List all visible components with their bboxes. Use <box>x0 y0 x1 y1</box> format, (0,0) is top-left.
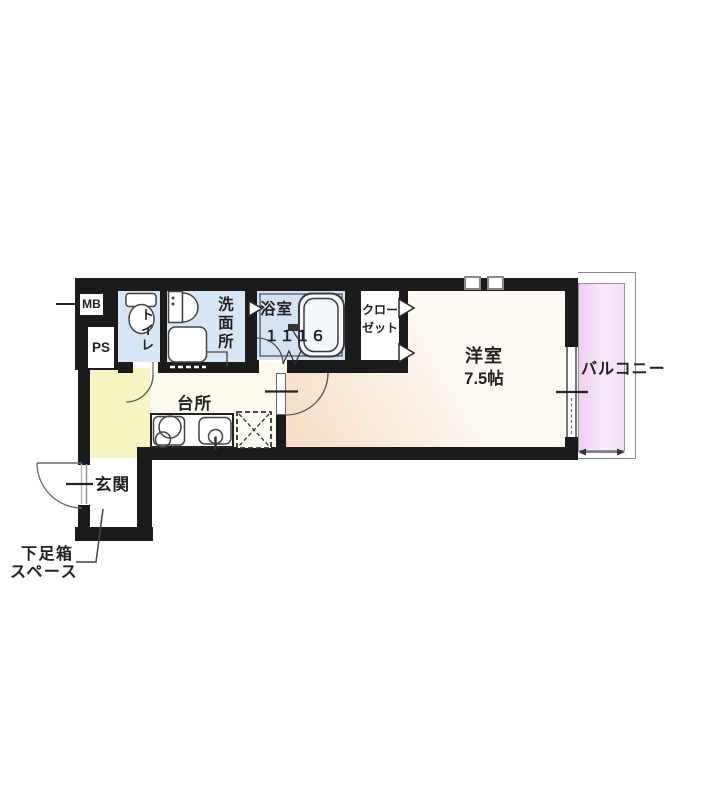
bathroom-size-label: １１１６ <box>264 328 326 345</box>
western-room-label: 洋室 7.5帖 <box>402 346 566 389</box>
kitchen-room-door-arc <box>265 373 328 415</box>
closet-label-line1: クロー <box>359 304 401 318</box>
washbasin-icon <box>169 292 198 323</box>
balcony-dimension-arrow <box>578 449 625 456</box>
western-room-name: 洋室 <box>402 346 566 367</box>
shoebox-label-line1: 下足箱 <box>21 546 78 564</box>
shoebox-space-label: 下足箱 スペース <box>10 546 78 583</box>
toilet-door-arc <box>126 362 153 402</box>
kitchen-label: 台所 <box>177 395 212 414</box>
entrance-label: 玄関 <box>95 476 130 495</box>
toilet-label: トイレ <box>138 308 153 353</box>
entrance-door-arc <box>37 463 93 508</box>
stove-icon <box>154 416 185 447</box>
shoebox-leader-line <box>76 509 103 562</box>
balcony-label: バルコニー <box>581 361 666 379</box>
washroom-label: 洗面所 <box>215 296 233 352</box>
western-room-size: 7.5帖 <box>402 370 566 389</box>
refrigerator-space-icon <box>237 412 271 448</box>
washing-machine-icon <box>169 327 207 362</box>
closet-label-line2: ゼット <box>359 322 401 336</box>
bathroom-label: 浴室 <box>260 301 293 319</box>
balcony-window-marks <box>556 392 588 434</box>
floor-plan: MB PS <box>0 0 721 800</box>
sink-icon <box>199 418 231 451</box>
shoebox-label-line2: スペース <box>10 564 78 582</box>
plan-linework <box>0 0 721 800</box>
closet-label: クロー ゼット <box>359 304 401 336</box>
